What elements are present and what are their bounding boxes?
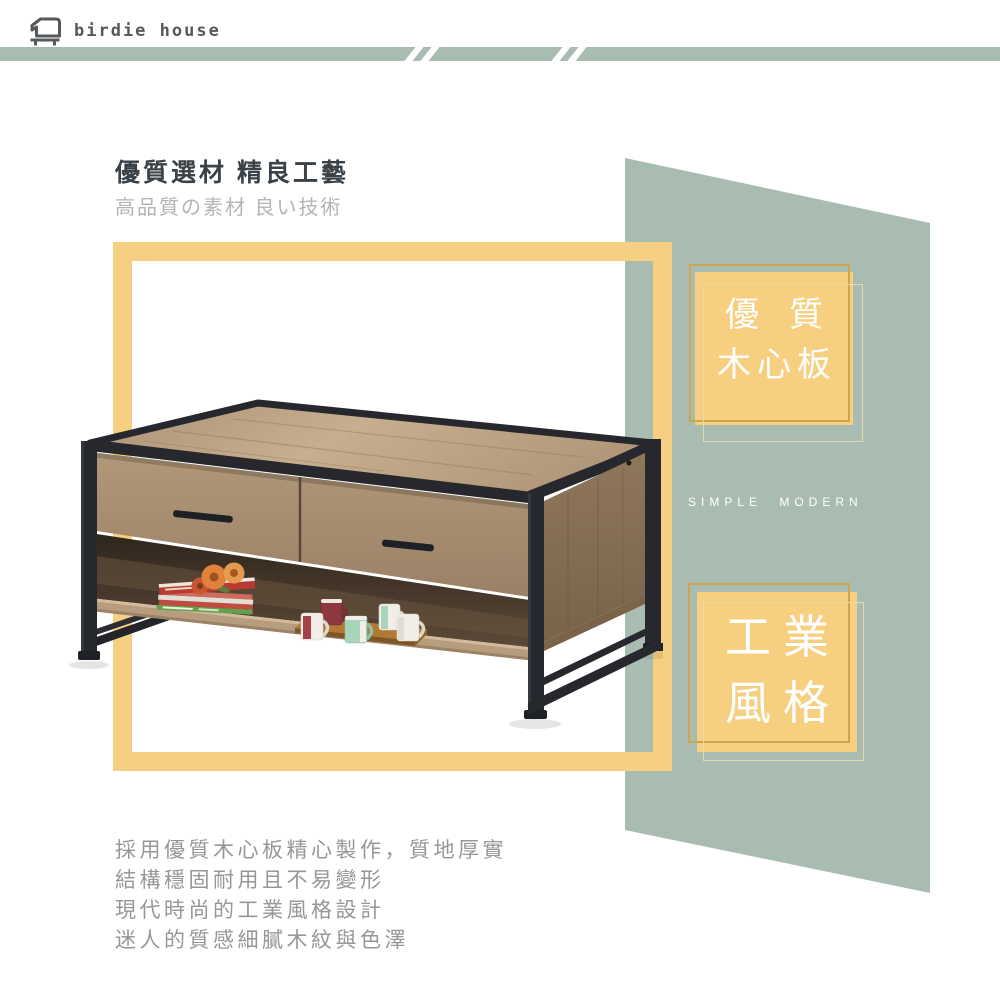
divider-slash-icon [568,47,587,61]
badge-outline [703,284,863,442]
badge-wood-core-board: 優質 木心板 [689,264,867,446]
coffee-table-photo [63,383,663,803]
description-line: 迷人的質感細膩木紋與色澤 [115,926,507,956]
headline-block: 優質選材 精良工藝 高品質の素材 良い技術 [115,158,349,220]
description-line: 結構穩固耐用且不易變形 [115,866,507,896]
divider-slash-icon [421,47,440,61]
description-line: 採用優質木心板精心製作，質地厚實 [115,836,507,866]
top-divider-bar [0,47,1000,61]
description-line: 現代時尚的工業風格設計 [115,896,507,926]
description-block: 採用優質木心板精心製作，質地厚實 結構穩固耐用且不易變形 現代時尚的工業風格設計… [115,836,507,956]
headline-title: 優質選材 精良工藝 [115,158,349,188]
badge-outline [703,602,864,761]
brand-logo-icon [28,16,64,46]
tagline: SIMPLE MODERN [688,495,863,509]
brand-logo-text: birdie house [74,21,221,41]
brand-header: birdie house [28,16,221,46]
headline-subtitle: 高品質の素材 良い技術 [115,196,349,220]
badge-industrial-style: 工業 風格 [688,583,870,767]
promo-banner-page: birdie house 優質選材 精良工藝 高品質の素材 良い技術 優質 木心… [0,0,1000,1000]
